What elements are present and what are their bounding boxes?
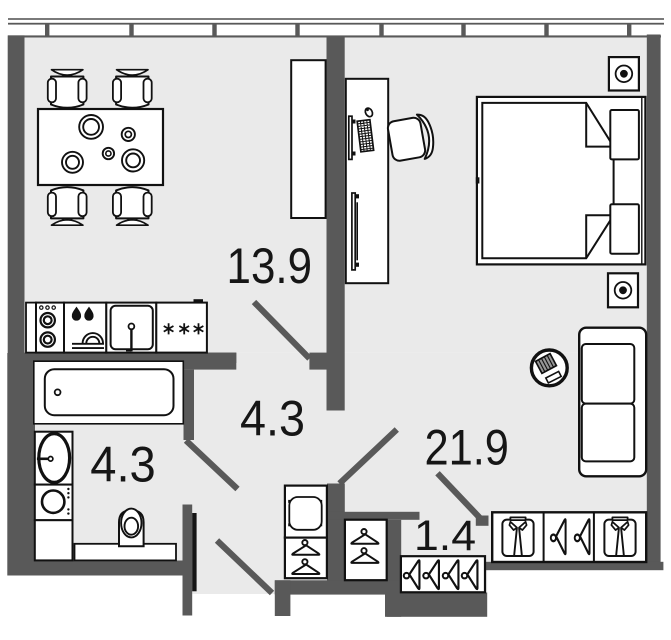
svg-text:13.9: 13.9: [227, 238, 313, 294]
svg-text:4.3: 4.3: [240, 390, 305, 446]
svg-text:21.9: 21.9: [424, 420, 509, 476]
svg-text:4.3: 4.3: [90, 437, 156, 493]
svg-text:1.4: 1.4: [414, 513, 476, 560]
